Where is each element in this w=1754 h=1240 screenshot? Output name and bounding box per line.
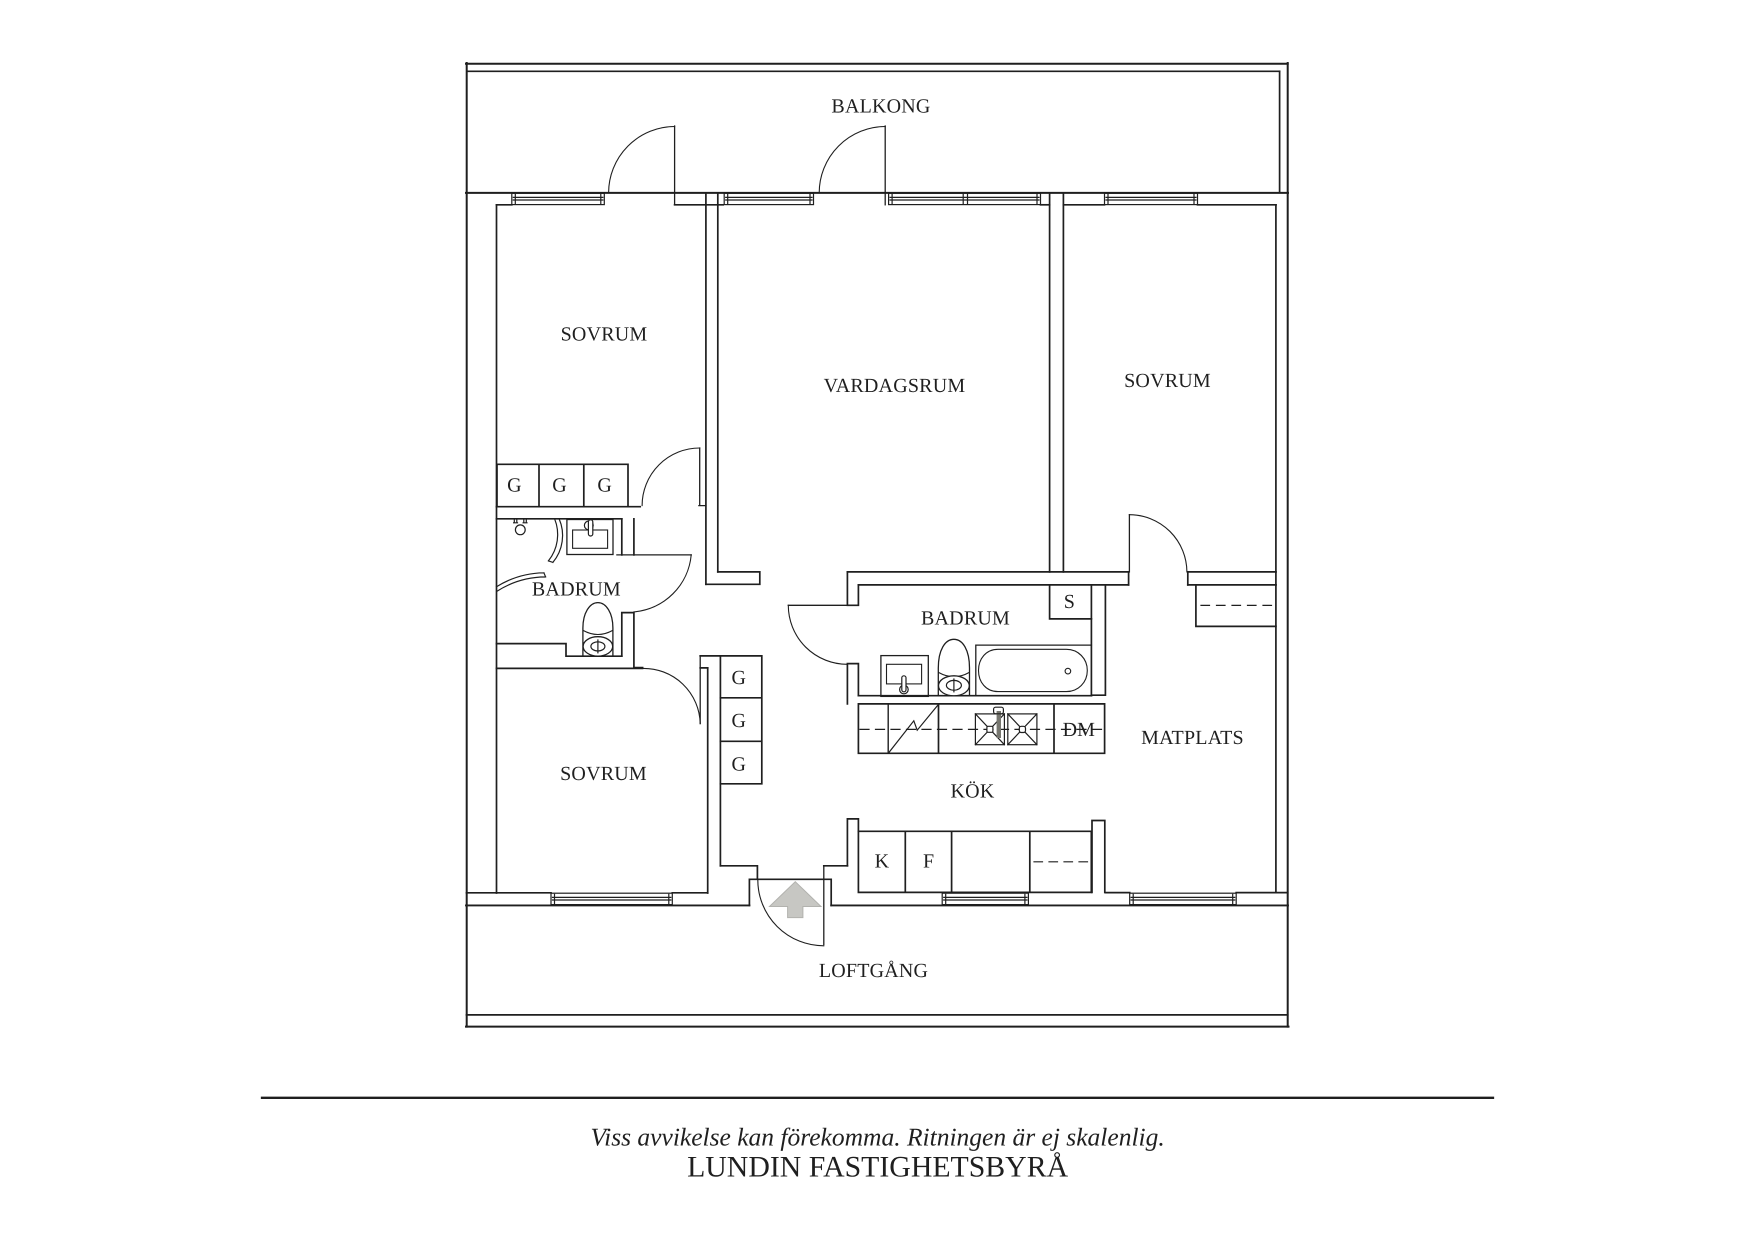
svg-text:BADRUM: BADRUM — [532, 579, 621, 601]
svg-text:SOVRUM: SOVRUM — [1124, 370, 1211, 392]
svg-text:F: F — [923, 850, 934, 872]
svg-text:DM: DM — [1063, 719, 1095, 741]
svg-text:SOVRUM: SOVRUM — [561, 324, 648, 346]
svg-text:K: K — [875, 850, 890, 872]
svg-text:S: S — [1064, 591, 1075, 613]
svg-text:MATPLATS: MATPLATS — [1141, 727, 1244, 749]
svg-text:Viss avvikelse kan förekomma.: Viss avvikelse kan förekomma. Ritningen … — [590, 1123, 1164, 1152]
svg-text:G: G — [552, 475, 566, 497]
svg-text:G: G — [731, 710, 745, 732]
svg-text:G: G — [731, 667, 745, 689]
svg-text:VARDAGSRUM: VARDAGSRUM — [824, 375, 966, 397]
svg-text:G: G — [507, 475, 521, 497]
svg-text:G: G — [731, 754, 745, 776]
svg-text:LOFTGÅNG: LOFTGÅNG — [819, 960, 928, 982]
svg-text:SOVRUM: SOVRUM — [560, 763, 647, 785]
svg-text:BADRUM: BADRUM — [921, 608, 1010, 630]
svg-text:G: G — [597, 475, 611, 497]
svg-text:KÖK: KÖK — [951, 781, 995, 803]
svg-text:LUNDIN FASTIGHETSBYRÅ: LUNDIN FASTIGHETSBYRÅ — [687, 1150, 1068, 1183]
svg-text:BALKONG: BALKONG — [831, 96, 930, 118]
